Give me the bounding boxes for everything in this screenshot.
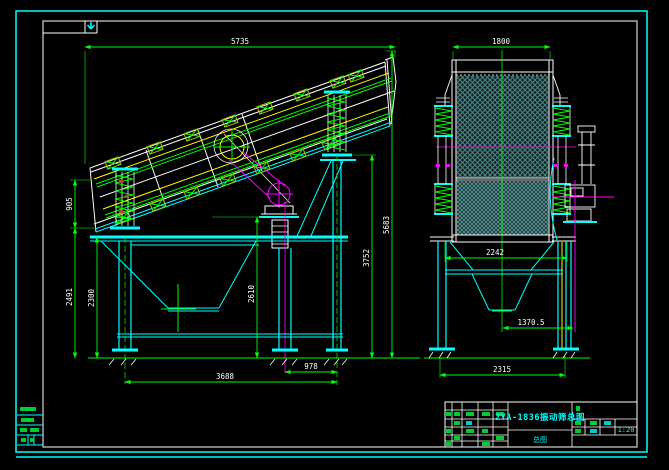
- projection-symbol-icon: [88, 22, 95, 29]
- drawing-sheet: 5735 1800 905 2491 2300 2610 3752 5683 9…: [0, 0, 669, 470]
- dim-rear-height: 3752: [362, 249, 371, 267]
- cad-canvas: 5735 1800 905 2491 2300 2610 3752 5683 9…: [0, 0, 669, 470]
- dim-base-span: 2315: [493, 365, 511, 374]
- upper-screen-mesh: [457, 76, 548, 177]
- dim-overall-height: 5683: [382, 216, 391, 234]
- margin-table: [17, 407, 43, 445]
- dim-spring-height: 905: [65, 197, 74, 211]
- drawing-title: 2YA-1836振动筛总图: [495, 412, 585, 423]
- dim-motor-offset: 1370.5: [517, 318, 544, 327]
- side-view: [88, 57, 420, 385]
- lower-screen-mesh: [457, 181, 548, 235]
- dim-overall-length: 5735: [231, 37, 249, 46]
- front-view: [424, 50, 614, 358]
- dim-rear-span: 978: [304, 362, 318, 371]
- front-motor: [550, 126, 614, 332]
- dim-leg-height: 2300: [87, 288, 96, 307]
- dim-support-span: 3688: [216, 372, 235, 381]
- dim-mid-height: 2610: [247, 284, 256, 303]
- screen-body-outline: [90, 57, 396, 232]
- drawing-scale: 1:20: [618, 426, 635, 434]
- front-legs: [424, 237, 590, 358]
- dim-spring-span: 2242: [486, 248, 504, 257]
- projection-cell: [43, 21, 97, 33]
- sheet-border: [16, 11, 647, 457]
- ground-line: [88, 358, 420, 365]
- dim-left-height: 2491: [65, 288, 74, 306]
- drawing-sub-label: 总图: [533, 435, 547, 444]
- support-frame: [90, 155, 348, 385]
- dim-width: 1800: [492, 37, 511, 46]
- title-block: 2YA-1836振动筛总图 总图 1:20: [445, 402, 637, 447]
- title-block-marks: [446, 406, 611, 446]
